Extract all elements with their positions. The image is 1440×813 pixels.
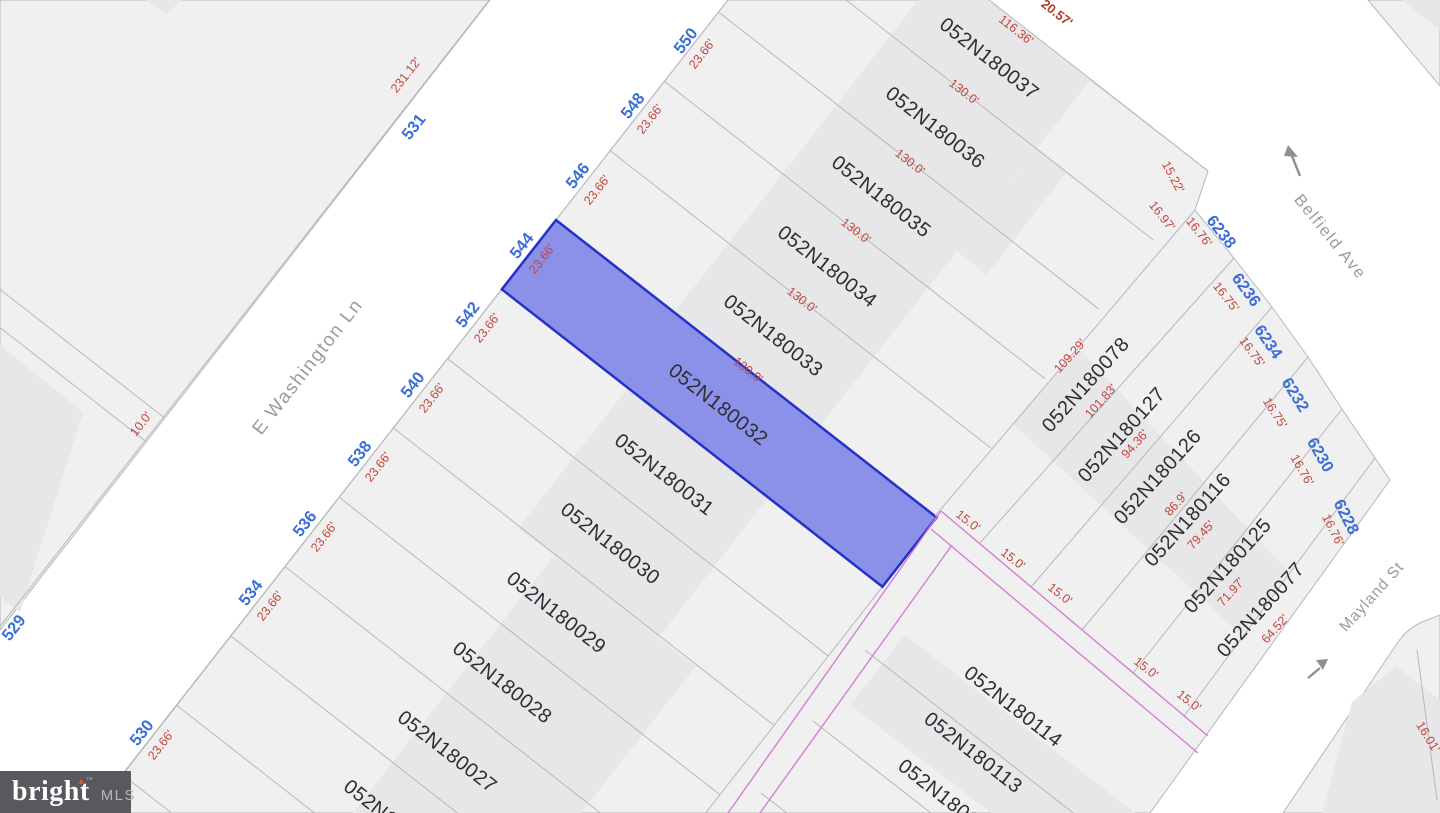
mls-suffix: MLS [101,787,136,804]
one-way-arrow-belfield-icon [1284,145,1300,176]
street-label-mayland: Mayland St [1336,559,1407,635]
plat-map: 052N180037 052N180036 052N180035 052N180… [0,0,1440,813]
brightmls-logo: bright▲™MLS [0,771,131,813]
street-label-belfield: Belfield Ave [1290,191,1369,283]
one-way-arrow-mayland-icon [1308,659,1328,678]
dimension-north-frontage: 20.57' [1038,0,1075,30]
house-number: 531 [398,111,429,144]
trademark-symbol: ™ [86,777,93,784]
street-label-washington: E Washington Ln [248,295,367,439]
parcel-map-canvas[interactable]: 052N180037 052N180036 052N180035 052N180… [0,0,1440,813]
